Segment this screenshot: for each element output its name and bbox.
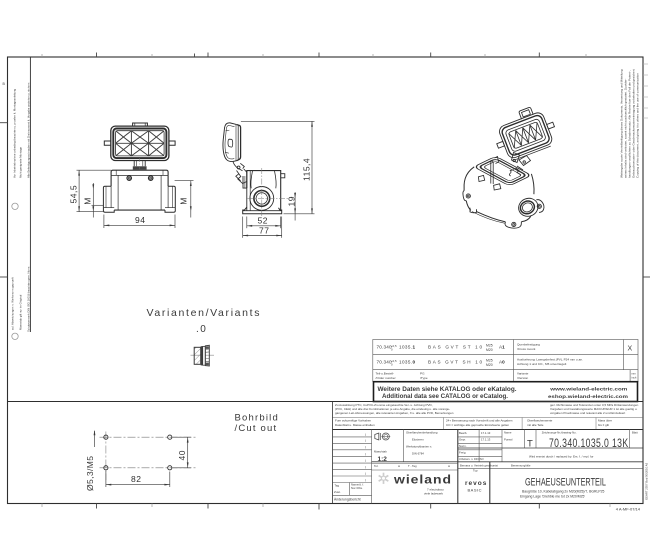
svg-text:A0: A0 bbox=[499, 360, 505, 365]
svg-text:GEART 2557 Bod 50/2010 A3: GEART 2557 Bod 50/2010 A3 bbox=[645, 462, 649, 500]
svg-text:inch: inch bbox=[632, 376, 637, 380]
svg-text:/: / bbox=[365, 459, 366, 463]
svg-text:Datenblatt u. Masse einhalten: Datenblatt u. Masse einhalten bbox=[335, 423, 375, 427]
svg-text:19: 19 bbox=[287, 196, 297, 206]
svg-text:mit alle Teile: mit alle Teile bbox=[527, 423, 544, 427]
svg-text:1035.1: 1035.1 bbox=[399, 345, 416, 350]
svg-text:CO = wichtige alle gepruefte E: CO = wichtige alle gepruefte Einzelwerte… bbox=[446, 423, 509, 427]
svg-text:/Order number: /Order number bbox=[376, 376, 396, 380]
svg-text:24+ Bemassung nach Vorschrift: 24+ Bemassung nach Vorschrift und alle A… bbox=[446, 419, 513, 423]
svg-text:/: / bbox=[365, 472, 366, 476]
svg-text:Änderungsbericht: Änderungsbericht bbox=[334, 498, 361, 502]
svg-text:.0: .0 bbox=[196, 324, 207, 335]
svg-text:/: / bbox=[365, 433, 366, 437]
svg-text:Querbefestigung: Querbefestigung bbox=[517, 343, 540, 347]
svg-text:Oberflaechenbehandlung: Oberflaechenbehandlung bbox=[406, 431, 438, 435]
svg-text:Tag: Tag bbox=[335, 484, 340, 488]
svg-text:77: 77 bbox=[259, 225, 269, 235]
svg-text:Tol.: Tol. bbox=[374, 464, 379, 468]
svg-text:Zust.: Zust. bbox=[334, 490, 341, 494]
svg-text:Fuer zukuenftige Vorhaben: Fuer zukuenftige Vorhaben bbox=[335, 419, 371, 423]
svg-text:Achtung 1 und CO., M5 unverrie: Achtung 1 und CO., M5 unverriegelt bbox=[517, 362, 566, 366]
svg-text:70.340: 70.340 bbox=[377, 345, 392, 350]
svg-text:Baugröße 10, Kabelabgang 2x M2: Baugröße 10, Kabelabgang 2x M20(M25)/7, … bbox=[522, 489, 604, 493]
svg-text:Bearb.: Bearb. bbox=[459, 431, 467, 435]
svg-text:52: 52 bbox=[258, 216, 268, 226]
svg-text:revos: revos bbox=[465, 480, 487, 487]
svg-text:eshop.wieland-electric.com: eshop.wieland-electric.com bbox=[548, 394, 628, 399]
svg-text:bis ± gilt: bis ± gilt bbox=[598, 423, 609, 427]
svg-text:Additional data see CATALOG or: Additional data see CATALOG or eCatalog. bbox=[382, 393, 508, 400]
svg-text:Werkstueckkanten n.: Werkstueckkanten n. bbox=[406, 445, 432, 449]
svg-text:M: M bbox=[179, 197, 189, 205]
svg-text:/Version: /Version bbox=[517, 376, 528, 380]
svg-text:viele ladewerk: viele ladewerk bbox=[424, 492, 444, 496]
svg-text:Mass/stab: Mass/stab bbox=[374, 450, 387, 454]
svg-text:17.1.13: 17.1.13 bbox=[481, 431, 491, 435]
svg-text:Alle Befestigungsschrauben mit: Alle Befestigungsschrauben mit Drehmomen… bbox=[27, 82, 31, 178]
svg-text:/: / bbox=[365, 446, 366, 450]
svg-text:X: X bbox=[628, 346, 633, 353]
svg-text:M: M bbox=[83, 197, 93, 205]
svg-text:/: / bbox=[365, 466, 366, 470]
svg-text:/: / bbox=[365, 478, 366, 482]
svg-text:1:2: 1:2 bbox=[378, 456, 388, 463]
svg-text:/Cut out: /Cut out bbox=[235, 423, 278, 434]
svg-text:BASIC: BASIC bbox=[468, 488, 483, 493]
svg-text:www.wieland-electric.com: www.wieland-electric.com bbox=[549, 387, 627, 392]
svg-text:gangenen Leit-Abmessungen, all: gangenen Leit-Abmessungen, alle relevant… bbox=[335, 411, 454, 415]
svg-text:Schutzvermerk DIN ISO 16016 be: Schutzvermerk DIN ISO 16016 beachten gem… bbox=[27, 266, 31, 332]
svg-text:Nicht geeignete Montage: Nicht geeignete Montage bbox=[19, 146, 23, 178]
svg-text:zul. Abweichungen n. Werksnorm: zul. Abweichungen n. Werksnorm geprueft bbox=[11, 277, 15, 330]
svg-text:Bemass u. Vertrieb geschuetzt: Bemass u. Vertrieb geschuetzt bbox=[460, 464, 498, 468]
svg-text:1035.0: 1035.0 bbox=[399, 360, 416, 365]
svg-text:Gepr.: Gepr. bbox=[459, 437, 466, 441]
svg-text:40: 40 bbox=[177, 450, 187, 460]
svg-text:Massstab gilt nur im Original: Massstab gilt nur im Original bbox=[19, 294, 23, 330]
svg-text:Oberflaechenwerte: Oberflaechenwerte bbox=[527, 419, 553, 423]
svg-text:Ø5,3/M5: Ø5,3/M5 bbox=[85, 456, 95, 491]
svg-text:Norm.: Norm. bbox=[459, 444, 467, 448]
svg-text:Poessl: Poessl bbox=[504, 437, 513, 441]
svg-text:Varianten/Variants: Varianten/Variants bbox=[147, 307, 260, 319]
svg-text:Weitere Daten siehe KATALOG od: Weitere Daten siehe KATALOG oder eKatalo… bbox=[378, 386, 517, 393]
svg-text:A1: A1 bbox=[499, 345, 505, 350]
svg-text:M20: M20 bbox=[486, 363, 493, 367]
svg-text:4 A-MF-07/14: 4 A-MF-07/14 bbox=[616, 507, 641, 512]
svg-text:115,4: 115,4 bbox=[302, 158, 312, 181]
svg-text:DIN 6784: DIN 6784 bbox=[412, 452, 424, 456]
svg-text:vorgaben Pruefmasse und releva: vorgaben Pruefmasse und relevant alle 2 … bbox=[550, 411, 625, 415]
svg-text:M20: M20 bbox=[486, 348, 493, 352]
svg-text:mm: mm bbox=[632, 373, 636, 376]
svg-text:Urhebers. n. DIN ISO: Urhebers. n. DIN ISO bbox=[459, 457, 484, 461]
svg-text:17.1.13: 17.1.13 bbox=[481, 437, 491, 441]
svg-text:82: 82 bbox=[131, 474, 141, 484]
svg-text:GEHAEUSEUNTERTEIL: GEHAEUSEUNTERTEIL bbox=[525, 477, 606, 489]
svg-text:T: T bbox=[527, 438, 533, 449]
svg-text:T ..Tag: T ..Tag bbox=[408, 464, 417, 468]
svg-text:Bohrbild: Bohrbild bbox=[235, 413, 279, 424]
svg-text:54,5: 54,5 bbox=[68, 185, 78, 204]
svg-text:/Cross mount: /Cross mount bbox=[517, 347, 536, 351]
svg-text:Wird ersetzt durch / replaced: Wird ersetzt durch / replaced by: Ers. f… bbox=[529, 455, 594, 459]
svg-text:Zeichnungs-Nr./drawing-No.: Zeichnungs-Nr./drawing-No. bbox=[542, 431, 577, 435]
svg-text:Freig.: Freig. bbox=[459, 450, 466, 454]
svg-text:Vor Inbetriebnahme unbedingt b: Vor Inbetriebnahme unbedingt beachten u.… bbox=[13, 88, 17, 178]
svg-text:/Type: /Type bbox=[420, 376, 428, 380]
svg-text:Name: Name bbox=[504, 431, 512, 435]
svg-text:/: / bbox=[365, 439, 366, 443]
svg-text:wieland: wieland bbox=[393, 475, 452, 487]
svg-text:Typ: Typ bbox=[473, 469, 478, 473]
svg-text:Ausfuehrung: Laengsbefest.(PV): Ausfuehrung: Laengsbefest.(PV), P24 mm o… bbox=[517, 358, 583, 362]
svg-text:Blatt: Blatt bbox=[632, 431, 638, 435]
svg-text:70.340: 70.340 bbox=[377, 360, 392, 365]
svg-text:94: 94 bbox=[135, 215, 145, 225]
svg-text:Copying of this document, and: Copying of this document, and giving it … bbox=[635, 73, 639, 178]
svg-text:Eloxieren: Eloxieren bbox=[412, 438, 424, 442]
svg-text:Eingang Lage 'Drehble me tot 2: Eingang Lage 'Drehble me tot 2x M20/M25' bbox=[520, 494, 585, 498]
svg-text:/: / bbox=[365, 453, 366, 457]
svg-text:Nor./Obs.: Nor./Obs. bbox=[351, 486, 363, 490]
svg-text:Benennung/title: Benennung/title bbox=[511, 464, 531, 468]
svg-text:70.340.1035.0 13K: 70.340.1035.0 13K bbox=[549, 438, 629, 450]
svg-text:Mass über: Mass über bbox=[598, 419, 612, 423]
